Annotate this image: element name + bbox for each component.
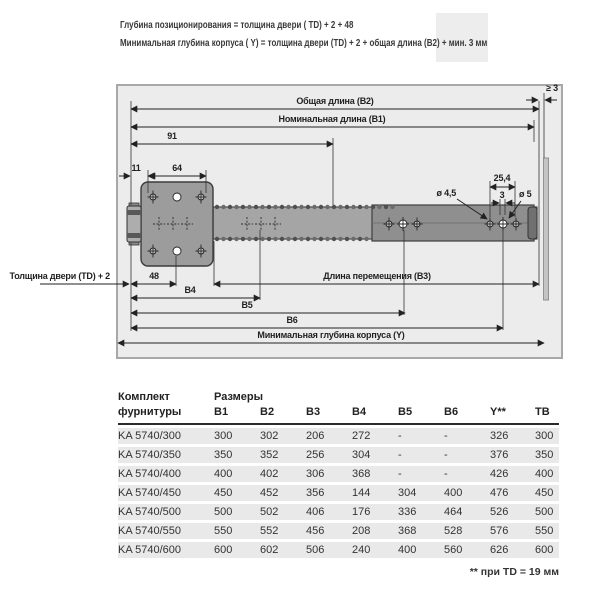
kit-name-cell: KA 5740/350	[118, 447, 214, 463]
table-cell: 240	[352, 542, 398, 558]
col-header: TB	[535, 405, 559, 420]
table-cell: 306	[306, 466, 352, 482]
table-row: KA 5740/500500502406176336464526500	[118, 504, 559, 520]
kit-name-cell: KA 5740/300	[118, 428, 214, 444]
rail-end-cap	[528, 207, 537, 239]
table-cell: 368	[352, 466, 398, 482]
table-cell: -	[444, 466, 490, 482]
dim-label-11: 11	[131, 163, 140, 173]
table-cell: 506	[306, 542, 352, 558]
dim-label-3: 3	[500, 190, 505, 200]
table-cell: 602	[260, 542, 306, 558]
table-cell: -	[398, 428, 444, 444]
table-cell: 464	[444, 504, 490, 520]
col-header: B3	[306, 405, 352, 420]
table-cell: 600	[214, 542, 260, 558]
table-cell: 350	[535, 447, 559, 463]
col-header: B5	[398, 405, 444, 420]
table-cell: 144	[352, 485, 398, 501]
table-cell: 376	[490, 447, 535, 463]
table-cell: 502	[260, 504, 306, 520]
table-cell: 400	[398, 542, 444, 558]
table-cell: 352	[260, 447, 306, 463]
table-cell: -	[444, 428, 490, 444]
kit-name-cell: KA 5740/600	[118, 542, 214, 558]
col-header-spacer	[444, 390, 490, 405]
col-header: B6	[444, 405, 490, 420]
col-header: B4	[352, 405, 398, 420]
dim-label-254: 25,4	[494, 173, 511, 183]
col-header: B1	[214, 405, 260, 420]
table-cell: 500	[535, 504, 559, 520]
dim-label-b1: Номинальная длина (B1)	[279, 114, 386, 124]
table-cell: 550	[214, 523, 260, 539]
table-cell: 600	[535, 542, 559, 558]
table-cell: 208	[352, 523, 398, 539]
technical-drawing: Общая длина (B2) Номинальная длина (B1) …	[0, 0, 600, 382]
table-cell: 552	[260, 523, 306, 539]
table-cell: -	[444, 447, 490, 463]
dim-label-b3: Длина перемещения (B3)	[323, 271, 431, 281]
dim-label-b6: B6	[286, 315, 297, 325]
col-header: Y**	[490, 405, 535, 420]
dim-label-b2: Общая длина (B2)	[296, 96, 373, 106]
table-cell: 368	[398, 523, 444, 539]
table-cell: 526	[490, 504, 535, 520]
table-cell: 350	[214, 447, 260, 463]
table-cell: 528	[444, 523, 490, 539]
table-cell: 272	[352, 428, 398, 444]
table-cell: 400	[535, 466, 559, 482]
kit-name-cell: KA 5740/450	[118, 485, 214, 501]
table-cell: 476	[490, 485, 535, 501]
dim-label-91: 91	[167, 131, 177, 141]
dim-label-b5: B5	[241, 300, 252, 310]
catalog-page: { "notes": { "line1": "Глубина позициони…	[0, 0, 600, 600]
dim-label-b4: B4	[184, 285, 195, 295]
col-group-label: Размеры	[214, 390, 260, 405]
table-cell: 406	[306, 504, 352, 520]
dim-label-48: 48	[149, 271, 159, 281]
table-cell: 326	[490, 428, 535, 444]
table-row: KA 5740/550550552456208368528576550	[118, 523, 559, 539]
table-cell: -	[398, 447, 444, 463]
table-cell: 176	[352, 504, 398, 520]
table-cell: 256	[306, 447, 352, 463]
col-header-spacer	[352, 390, 398, 405]
col-header-spacer	[398, 390, 444, 405]
dim-label-ge3: ≥ 3	[546, 83, 558, 93]
table-cell: 456	[306, 523, 352, 539]
table-cell: 206	[306, 428, 352, 444]
table-row: KA 5740/400400402306368--426400	[118, 466, 559, 482]
dim-label-y: Минимальная глубина корпуса (Y)	[257, 330, 404, 340]
table-cell: 560	[444, 542, 490, 558]
col-header-spacer	[535, 390, 559, 405]
table-cell: -	[398, 466, 444, 482]
col-header-name: Комплект	[118, 390, 214, 405]
cabinet-back-wall	[544, 158, 549, 300]
kit-name-cell: KA 5740/500	[118, 504, 214, 520]
table-cell: 426	[490, 466, 535, 482]
door-pivot	[127, 203, 141, 245]
table-cell: 500	[214, 504, 260, 520]
fittings-table: КомплектРазмерыфурнитурыB1B2B3B4B5B6Y**T…	[118, 390, 559, 558]
table-cell: 304	[398, 485, 444, 501]
table-cell: 450	[214, 485, 260, 501]
table-cell: 400	[444, 485, 490, 501]
table-cell: 402	[260, 466, 306, 482]
header-rule	[118, 420, 559, 425]
table-cell: 550	[535, 523, 559, 539]
dim-label-64: 64	[172, 163, 182, 173]
table-row: KA 5740/600600602506240400560626600	[118, 542, 559, 558]
table-cell: 450	[535, 485, 559, 501]
dim-label-door-thickness: Толщина двери (TD) + 2	[9, 271, 110, 281]
table-cell: 300	[214, 428, 260, 444]
col-header-spacer	[306, 390, 352, 405]
table-cell: 626	[490, 542, 535, 558]
col-header-spacer	[490, 390, 535, 405]
dim-label-dia5: ø 5	[519, 189, 532, 199]
dim-label-dia45: ø 4,5	[436, 188, 456, 198]
col-header: B2	[260, 405, 306, 420]
table-cell: 356	[306, 485, 352, 501]
table-cell: 576	[490, 523, 535, 539]
table-footnote: ** при TD = 19 мм	[118, 566, 559, 578]
table-row: KA 5740/300300302206272--326300	[118, 428, 559, 444]
table-row: KA 5740/350350352256304--376350	[118, 447, 559, 463]
table-cell: 300	[535, 428, 559, 444]
kit-name-cell: KA 5740/550	[118, 523, 214, 539]
table-cell: 452	[260, 485, 306, 501]
table-cell: 336	[398, 504, 444, 520]
table-cell: 304	[352, 447, 398, 463]
kit-name-cell: KA 5740/400	[118, 466, 214, 482]
table-cell: 302	[260, 428, 306, 444]
col-header-name: фурнитуры	[118, 405, 214, 420]
table-cell: 400	[214, 466, 260, 482]
col-header-spacer	[260, 390, 306, 405]
table-row: KA 5740/450450452356144304400476450	[118, 485, 559, 501]
